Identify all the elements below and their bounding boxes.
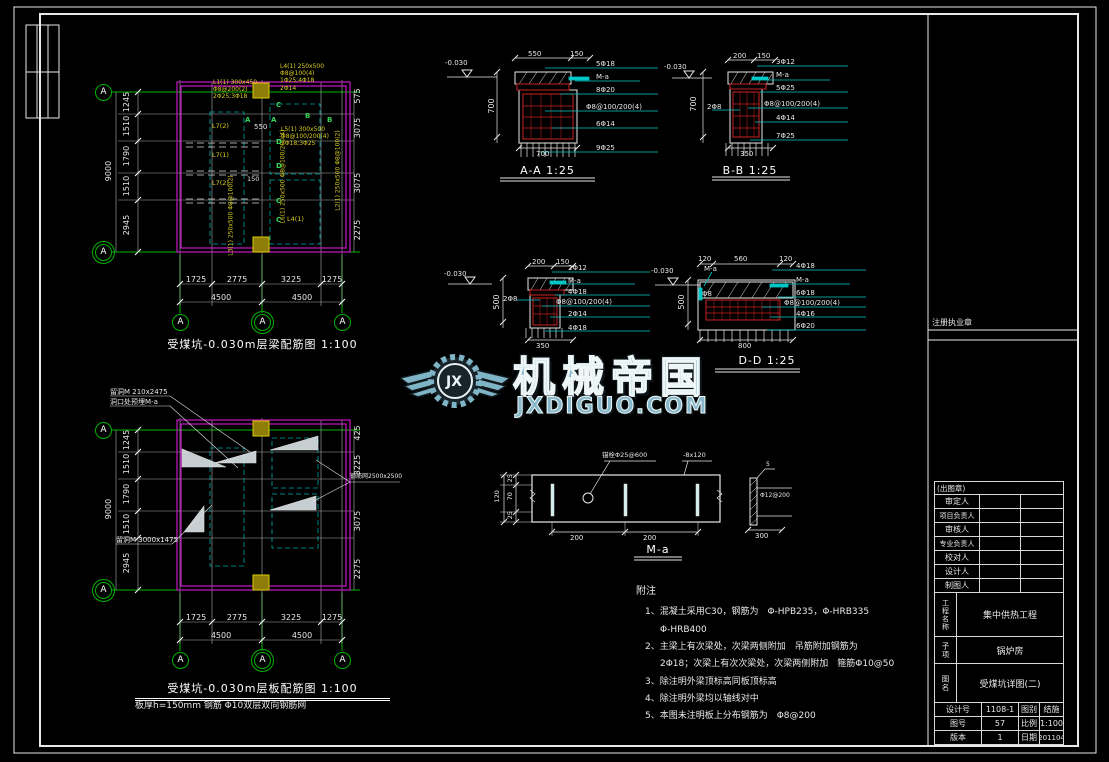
dim-label: 2775 — [217, 613, 257, 622]
dim-label: 2275 — [354, 549, 362, 589]
dim-label: 200 — [570, 534, 583, 542]
rebar-label: 6Φ20 — [796, 322, 815, 330]
rebar-label: Φ8 — [702, 290, 712, 298]
dim-label: 700 — [536, 150, 549, 158]
people-row-label: 制图人 — [934, 578, 980, 593]
rebar-label: Φ12@200 — [760, 493, 790, 500]
sub-item-value: 锅炉房 — [956, 636, 1064, 664]
date-label: 日期 — [1018, 730, 1040, 745]
axis-bubble: A — [334, 314, 351, 331]
drawing-name-label: 图名 — [934, 663, 957, 703]
dim-label: 500 — [678, 282, 686, 322]
note-line: 2Φ18；次梁上有次次梁处，次梁两侧附加 箍筋Φ10@50 — [660, 659, 894, 669]
callout-line: Φ8@100/200(4) — [281, 133, 329, 140]
dim-label: 350 — [740, 150, 753, 158]
value: 1:100 — [1040, 719, 1063, 728]
axis-bubble: A — [95, 422, 112, 439]
dim-label: 3225 — [271, 613, 311, 622]
beam-label: L4(1) — [287, 216, 304, 224]
annotation: 锚栓Φ25@600 — [602, 452, 647, 459]
label: 比例 — [1021, 718, 1037, 729]
people-row-cell — [979, 564, 1021, 579]
watermark: JX 机械帝国 JXDIGUO.COM — [400, 342, 720, 428]
label: 版本 — [950, 732, 966, 743]
dim-label: 1275 — [312, 613, 352, 622]
dim-label: 3075 — [354, 108, 362, 148]
plan2-note: 板厚h=150mm 钢筋 Φ10双层双向钢筋网 — [135, 701, 306, 711]
rebar-label: 2Φ8 — [503, 295, 517, 303]
axis-letter: A — [177, 655, 183, 665]
annotation: 钢筋网2500x2500 — [350, 474, 402, 481]
role-label: 审定人 — [945, 496, 969, 507]
axis-letter: A — [339, 317, 345, 327]
axis-letter: A — [259, 655, 265, 665]
dim-label: 3075 — [354, 163, 362, 203]
role-label: 项目负责人 — [940, 511, 975, 521]
axis-bubble: A — [95, 244, 112, 261]
callout-line: L5(1) 300x500 — [281, 126, 329, 133]
detail-ma-title: M-a — [636, 543, 680, 556]
dim-label: 150 — [757, 52, 770, 60]
dim-label: 120 — [698, 255, 711, 263]
section-mark: B — [327, 116, 332, 124]
dim-label: 800 — [738, 342, 751, 350]
dim-label: 4500 — [201, 293, 241, 302]
date-value: 201104 — [1039, 730, 1064, 745]
dim-label: 9000 — [105, 489, 113, 529]
stamp-header: (出图章) — [934, 481, 1064, 495]
people-row-label: 审核人 — [934, 522, 980, 537]
axis-bubble: A — [172, 314, 189, 331]
people-row-cell — [979, 550, 1021, 565]
rebar-label: Φ8@100/200(4) — [764, 100, 820, 108]
notes-title: 附注 — [636, 586, 656, 598]
category-label: 图别 — [1018, 702, 1040, 717]
value: 1 — [997, 733, 1002, 742]
watermark-logo-text: JX — [446, 374, 462, 390]
label: 日期 — [1021, 732, 1037, 743]
people-row-cell — [1020, 536, 1064, 551]
dim-label: 150 — [247, 176, 259, 183]
axis-bubble: A — [172, 652, 189, 669]
rebar-label: 4Φ18 — [568, 324, 587, 332]
rebar-label: 2Φ12 — [568, 264, 587, 272]
weld-label: 5 — [766, 462, 770, 469]
scale-label: 比例 — [1018, 716, 1040, 731]
rebar-label: 7Φ25 — [776, 132, 795, 140]
design-no-label: 设计号 — [934, 702, 982, 717]
label: 图名 — [940, 675, 951, 692]
people-row-cell — [1020, 550, 1064, 565]
dim-label: 700 — [690, 84, 698, 124]
people-row-cell — [979, 522, 1021, 537]
dim-label: 200 — [643, 534, 656, 542]
section-mark: B — [305, 112, 310, 120]
people-row-cell — [979, 494, 1021, 509]
people-row-label: 审定人 — [934, 494, 980, 509]
note-line: 2、主梁上有次梁处，次梁两侧附加 吊筋附加钢筋为 — [645, 642, 858, 652]
value: 受煤坑详图(二) — [979, 677, 1040, 690]
section-bb-title: B-B 1:25 — [706, 164, 794, 177]
project-name-value: 集中供热工程 — [956, 592, 1064, 637]
project-name-label: 工程名称 — [934, 592, 957, 637]
dim-label: 550 — [528, 50, 541, 58]
rebar-label: Φ8@100/200(4) — [586, 103, 642, 111]
value: 1108-1 — [986, 705, 1014, 714]
rebar-label: 6Φ14 — [596, 120, 615, 128]
beam-callout: L3(1) 250x500 Φ8@100(2) — [228, 161, 235, 271]
axis-letter: A — [100, 585, 106, 595]
section-mark: A — [245, 116, 250, 124]
axis-bubble: A — [254, 314, 271, 331]
section-aa-title: A-A 1:25 — [500, 164, 595, 177]
people-row-cell — [1020, 522, 1064, 537]
sheet-no-value: 57 — [981, 716, 1019, 731]
dim-label: 1275 — [312, 275, 352, 284]
rebar-label: 3Φ12 — [776, 58, 795, 66]
label: 图号 — [950, 718, 966, 729]
rebar-label: 5Φ25 — [776, 84, 795, 92]
rebar-label: 4Φ14 — [776, 114, 795, 122]
axis-bubble: A — [95, 582, 112, 599]
annotation: 留洞M 210x2475 — [110, 388, 168, 396]
dim-label: 2275 — [354, 210, 362, 250]
sub-item-label: 子项 — [934, 636, 957, 664]
stamp-label: (出图章) — [937, 483, 965, 494]
axis-letter: A — [100, 425, 106, 435]
drawing-name-value: 受煤坑详图(二) — [956, 663, 1064, 703]
axis-letter: A — [259, 317, 265, 327]
rebar-label: 4Φ18 — [568, 288, 587, 296]
people-row-cell — [979, 536, 1021, 551]
axis-bubble: A — [334, 652, 351, 669]
category-value: 结施 — [1039, 702, 1064, 717]
dim-label: 120 — [779, 255, 792, 263]
role-label: 设计人 — [945, 566, 969, 577]
rebar-label: M-a — [596, 73, 609, 81]
dim-label: 700 — [488, 86, 496, 126]
value: 201104 — [1039, 734, 1064, 742]
dim-label: 120 — [494, 476, 501, 516]
axis-letter: A — [100, 247, 106, 257]
beam-label: L7(2) — [212, 123, 229, 131]
watermark-domain: JXDIGUO.COM — [516, 394, 709, 419]
dim-label: 2775 — [217, 275, 257, 284]
callout-line: Φ8@100(4) — [280, 70, 324, 77]
seal-label: 注册执业章 — [932, 318, 972, 327]
people-row-cell — [979, 578, 1021, 593]
note-line: 1、混凝土采用C30，钢筋为 Φ-HPB235，Φ-HRB335 — [645, 607, 869, 617]
label: 图别 — [1021, 704, 1037, 715]
rebar-label: 9Φ25 — [596, 144, 615, 152]
dim-label: 560 — [734, 255, 747, 263]
dim-label: 200 — [532, 258, 545, 266]
value: 锅炉房 — [996, 644, 1023, 657]
rebar-label: M-a — [568, 277, 581, 285]
scale-value: 1:100 — [1039, 716, 1064, 731]
rebar-label: 2Φ8 — [707, 103, 721, 111]
dim-label: 3225 — [271, 275, 311, 284]
design-no-value: 1108-1 — [981, 702, 1019, 717]
callout-line: L4(1) 250x500 — [280, 63, 324, 70]
beam-callout: L2(1) 250x500 Φ8@100(2) — [335, 116, 342, 226]
plan1-title: 受煤坑-0.030m层梁配筋图 1:100 — [130, 336, 395, 352]
note-line: 4、除注明外梁均以轴线对中 — [645, 694, 759, 704]
role-label: 制图人 — [945, 580, 969, 591]
section-mark: A — [271, 116, 276, 124]
people-row-label: 校对人 — [934, 550, 980, 565]
section-mark: D — [276, 162, 282, 170]
dim-label: 1725 — [176, 275, 216, 284]
dim-label: 3075 — [354, 501, 362, 541]
value: 集中供热工程 — [983, 608, 1037, 621]
dim-label: 1510 — [123, 166, 131, 206]
callout-line: 2Φ25;3Φ18 — [213, 93, 257, 100]
axis-letter: A — [339, 655, 345, 665]
dim-label: 2945 — [123, 205, 131, 245]
plan2-title: 受煤坑-0.030m层板配筋图 1:100 — [135, 680, 390, 701]
dim-label: 2945 — [123, 543, 131, 583]
annotation: 洞口处预埋M-a — [110, 398, 158, 406]
beam-callout: L5(1) 300x500 Φ8@100/200(4) 2Φ18;3Φ25 — [281, 126, 329, 148]
dim-label: 25 — [507, 495, 514, 535]
axis-letter: A — [100, 87, 106, 97]
axis-letter: A — [177, 317, 183, 327]
rebar-label: 6Φ18 — [796, 289, 815, 297]
people-row-cell — [1020, 578, 1064, 593]
cad-sheet: A A A A A A A A A A 1245 1510 1790 1510 … — [0, 0, 1109, 762]
version-label: 版本 — [934, 730, 982, 745]
section-mark: C — [276, 101, 281, 109]
people-row-cell — [1020, 564, 1064, 579]
dim-label: 9000 — [105, 151, 113, 191]
beam-callout: L1(1) 300x450 Φ8@200(2) 2Φ25;3Φ18 — [213, 79, 257, 101]
rebar-label: Φ8@100/200(4) — [784, 299, 840, 307]
rebar-label: 2Φ14 — [568, 310, 587, 318]
rebar-label: 8Φ20 — [596, 86, 615, 94]
axis-lines — [112, 92, 360, 651]
dim-label: 1725 — [176, 613, 216, 622]
rebar-label: M-a — [776, 71, 789, 79]
role-label: 专业负责人 — [940, 539, 975, 549]
version-value: 1 — [981, 730, 1019, 745]
people-row-cell — [1020, 494, 1064, 509]
elevation-label: -0.030 — [445, 59, 468, 67]
role-label: 审核人 — [945, 524, 969, 535]
beam-label: L7(1) — [212, 152, 229, 160]
people-row-label: 项目负责人 — [934, 508, 980, 523]
rebar-label: 4Φ16 — [796, 310, 815, 318]
rebar-label: 4Φ18 — [796, 262, 815, 270]
label: 子项 — [940, 642, 951, 659]
people-row-cell — [1020, 508, 1064, 523]
dim-label: 4500 — [282, 293, 322, 302]
plate-label: M-a — [704, 265, 717, 273]
annotation: -8x120 — [683, 452, 706, 459]
axis-bubble: A — [254, 652, 271, 669]
dim-label: 200 — [733, 52, 746, 60]
dim-label: 550 — [254, 123, 267, 131]
callout-line: L1(1) 300x450 — [213, 79, 257, 86]
annotation: 留洞M 3000x1475 — [116, 536, 178, 544]
callout-line: 2Φ14 — [280, 85, 324, 92]
value: 57 — [995, 719, 1005, 728]
slab-bar-symbols — [182, 436, 318, 532]
dim-label: 4500 — [201, 631, 241, 640]
rebar-label: M-a — [796, 276, 809, 284]
callout-line: 2Φ18;3Φ25 — [281, 140, 329, 147]
dim-label: 150 — [570, 50, 583, 58]
note-line: Φ-HRB400 — [660, 625, 707, 635]
section-mark: D — [276, 138, 282, 146]
callout-line: 1Φ25;4Φ18 — [280, 77, 324, 84]
value: 结施 — [1044, 704, 1060, 715]
label: 工程名称 — [941, 599, 951, 631]
callout-line: Φ8@200(2) — [213, 86, 257, 93]
rebar-label: Φ8@100/200(4) — [556, 298, 612, 306]
role-label: 校对人 — [945, 552, 969, 563]
elevation-label: -0.030 — [651, 267, 674, 275]
note-line: 3、除注明外梁顶标高同板顶标高 — [645, 677, 777, 687]
section-mark: C — [276, 197, 281, 205]
elevation-label: -0.030 — [664, 63, 687, 71]
dim-label: 4500 — [282, 631, 322, 640]
section-mark: C — [276, 216, 281, 224]
rebar-label: 5Φ18 — [596, 60, 615, 68]
people-row-label: 专业负责人 — [934, 536, 980, 551]
people-row-cell — [979, 508, 1021, 523]
dim-label: 500 — [493, 282, 501, 322]
dim-label: 300 — [755, 532, 768, 540]
note-line: 5、本图未注明板上分布钢筋为 Φ8@200 — [645, 711, 816, 721]
sheet-no-label: 图号 — [934, 716, 982, 731]
label: 设计号 — [946, 704, 970, 715]
beam-label: L7(2) — [212, 180, 229, 188]
section-dd-title: D-D 1:25 — [722, 354, 812, 367]
elevation-label: -0.030 — [444, 270, 467, 278]
beam-callout: L4(1) 250x500 Φ8@100(4) 1Φ25;4Φ18 2Φ14 — [280, 63, 324, 92]
people-row-label: 设计人 — [934, 564, 980, 579]
axis-bubble: A — [95, 84, 112, 101]
